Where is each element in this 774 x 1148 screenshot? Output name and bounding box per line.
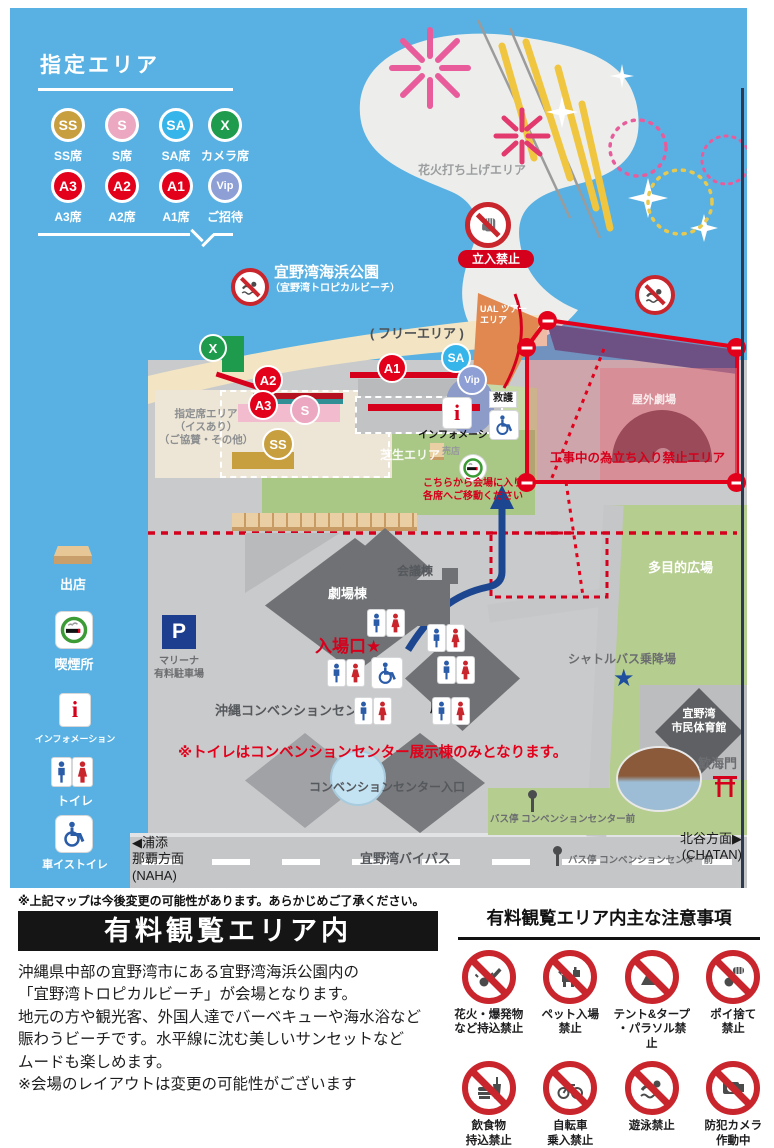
- toilet-icon: [428, 625, 464, 651]
- woman-icon: [387, 610, 404, 636]
- outdoor-theater-label: 屋外劇場: [632, 394, 676, 408]
- wheelchair-icon: [490, 411, 518, 439]
- legend-label: S席: [93, 147, 151, 164]
- man-icon: [355, 698, 372, 724]
- no-swimming-icon: [231, 268, 269, 306]
- rule-label: 防犯カメラ 作動中: [695, 1119, 773, 1148]
- rule-item: 防犯カメラ 作動中: [695, 1061, 773, 1148]
- free-area-label: ( フリーエリア ): [370, 326, 464, 342]
- rule-label: 自転車 乗入禁止: [532, 1119, 610, 1148]
- sidebar-label-smoking: 喫煙所: [45, 654, 103, 673]
- seat-marker-x: X: [199, 334, 227, 362]
- entrance-label: 入場口★: [315, 636, 381, 657]
- man-icon: [433, 698, 450, 724]
- man-icon: [438, 657, 455, 683]
- legend-badge-x: X: [208, 108, 242, 142]
- bus-stop-label: バス停 コンベンションセンター前: [490, 814, 635, 826]
- no-entry-label: 立入禁止: [458, 250, 534, 268]
- rule-item: 自転車 乗入禁止: [532, 1061, 610, 1148]
- boundary-marker-icon: [517, 338, 536, 357]
- legend-badge-a3: A3: [51, 169, 85, 203]
- legend-bottom-line: [213, 233, 233, 236]
- gym-label: 宜野湾 市民体育館: [658, 708, 740, 736]
- legend-label: A3席: [39, 208, 97, 225]
- legend-title: 指定エリア: [40, 53, 160, 79]
- rule-item: 遊泳禁止: [613, 1061, 691, 1148]
- wheelchair-icon: [56, 816, 92, 852]
- no-pets-icon: [543, 950, 597, 1004]
- no-littering-icon: [706, 950, 760, 1004]
- rules-grid: 花火・爆発物 など持込禁止 ペット入場 禁止 テント&タープ ・パラソル禁止 ポ…: [450, 950, 772, 1148]
- dotted-circle-decoration: [648, 170, 712, 234]
- enter-here-label: こちらから会場に入り 各席へご移動ください: [395, 478, 523, 503]
- rule-label: テント&タープ ・パラソル禁止: [613, 1008, 691, 1051]
- dotted-circle-decoration: [610, 120, 666, 176]
- woman-icon: [447, 625, 464, 651]
- bus-stop-icon: [531, 798, 534, 812]
- legend-badge-ss: SS: [51, 108, 85, 142]
- parking-label: マリーナ 有料駐車場: [149, 656, 209, 681]
- sidebar-label-wheelchair-toilet: 車イストイレ: [35, 856, 115, 872]
- legend-label: ご招待: [196, 208, 254, 225]
- woman-icon: [374, 698, 391, 724]
- venue-map: 指定席エリア （イスあり） （ご協賛・その他） 屋外劇場 工事中の為立ち入り禁止…: [10, 8, 747, 888]
- legend-bottom-line: [38, 233, 190, 236]
- rule-label: 飲食物 持込禁止: [450, 1119, 528, 1148]
- cc-entrance-label: コンベンションセンター入口: [297, 780, 477, 795]
- rule-label: ポイ捨て 禁止: [695, 1008, 773, 1037]
- rule-item: ポイ捨て 禁止: [695, 950, 773, 1051]
- theater-building-label: 劇場棟: [328, 586, 367, 602]
- no-food-drink-icon: [462, 1061, 516, 1115]
- construction-label: 工事中の為立ち入り禁止エリア: [550, 451, 747, 467]
- sidebar-label-shop: 出店: [44, 574, 102, 593]
- fireworks-area-label: 花火打ち上げエリア: [418, 163, 526, 178]
- shop-label: 売店: [442, 446, 460, 457]
- rule-item: 花火・爆発物 など持込禁止: [450, 950, 528, 1051]
- woman-icon: [452, 698, 469, 724]
- venue-description: 沖縄県中部の宜野湾市にある宜野湾海浜公園内の 「宜野湾トロピカルビーチ」が会場と…: [18, 962, 452, 1097]
- information-icon: i: [60, 694, 90, 726]
- legend-tail: [190, 229, 203, 242]
- legend-underline: [38, 88, 233, 91]
- no-bicycles-icon: [543, 1061, 597, 1115]
- legend-badge-s: S: [105, 108, 139, 142]
- firework-burst-icon: [392, 30, 468, 106]
- legend-badge-sa: SA: [159, 108, 193, 142]
- shop-icon: [54, 546, 92, 564]
- seat-marker-a3: A3: [248, 390, 278, 420]
- info-i-glyph: i: [72, 697, 78, 723]
- paid-area-banner: 有料観覧エリア内: [18, 911, 438, 951]
- toilet-icon: [438, 657, 474, 683]
- no-tents-icon: [625, 950, 679, 1004]
- kankaimon-label: 歓海門: [698, 756, 737, 772]
- gate-icon: [710, 772, 740, 800]
- no-swimming-icon: [625, 1061, 679, 1115]
- toilet-note: ※トイレはコンベンションセンター展示棟のみとなります。: [178, 744, 608, 762]
- legend-badge-a1: A1: [159, 169, 193, 203]
- toilet-icon: [328, 660, 364, 686]
- rule-label: 花火・爆発物 など持込禁止: [450, 1008, 528, 1037]
- info-i-glyph: i: [454, 400, 460, 426]
- toilet-icon: [52, 758, 92, 786]
- sparkle-icon: [546, 64, 718, 242]
- multipurpose-label: 多目的広場: [648, 560, 713, 576]
- rules-title: 有料観覧エリア内主な注意事項: [458, 908, 760, 940]
- man-icon: [428, 625, 445, 651]
- wheelchair-icon: [372, 658, 402, 688]
- conference-building-label: 会議棟: [397, 564, 433, 579]
- no-swimming-icon: [635, 275, 675, 315]
- woman-icon: [347, 660, 364, 686]
- rule-label: 遊泳禁止: [613, 1119, 691, 1133]
- rule-item: テント&タープ ・パラソル禁止: [613, 950, 691, 1051]
- seat-marker-vip: Vip: [457, 365, 487, 395]
- legend-badge-vip: Vip: [208, 169, 242, 203]
- park-subname: （宜野湾トロピカルビーチ）: [270, 283, 400, 296]
- man-icon: [368, 610, 385, 636]
- rule-item: ペット入場 禁止: [532, 950, 610, 1051]
- firework-burst-icon: [496, 110, 548, 162]
- legend-label: カメラ席: [196, 147, 254, 164]
- legend-badge-a2: A2: [105, 169, 139, 203]
- lawn-label: 芝生エリア: [380, 448, 440, 463]
- seat-marker-a1: A1: [377, 353, 407, 383]
- a1-stand-bar: [350, 372, 470, 378]
- shuttle-star-icon: ★: [613, 664, 635, 694]
- park-name: 宜野湾海浜公園: [274, 264, 379, 283]
- map-footnote: ※上記マップは今後変更の可能性があります。あらかじめご了承ください。: [18, 894, 538, 909]
- kankaimon-photo: [618, 748, 700, 810]
- no-fireworks-icon: [462, 950, 516, 1004]
- bypass-label: 宜野湾バイパス: [360, 851, 451, 867]
- tents-row: [232, 513, 417, 531]
- information-icon: i: [443, 398, 471, 428]
- toilet-icon: [433, 698, 469, 724]
- sidebar-label-info: インフォメーション: [31, 732, 119, 745]
- naha-direction-label: ◀浦添 那覇方面 (NAHA): [132, 835, 184, 884]
- rule-item: 飲食物 持込禁止: [450, 1061, 528, 1148]
- sidebar-label-toilet: トイレ: [46, 792, 104, 809]
- man-icon: [328, 660, 345, 686]
- woman-icon: [457, 657, 474, 683]
- smoking-icon: [56, 612, 92, 648]
- first-aid-label: 救護: [490, 392, 516, 407]
- security-camera-icon: [706, 1061, 760, 1115]
- rule-label: ペット入場 禁止: [532, 1008, 610, 1037]
- bus-stop-icon: [556, 854, 559, 866]
- conference-building: [442, 568, 458, 584]
- toilet-icon: [368, 610, 404, 636]
- man-icon: [52, 758, 71, 786]
- no-entry-icon: [465, 202, 511, 248]
- chatan-direction-label: 北谷方面▶ (CHATAN): [650, 831, 742, 864]
- tour-area-label: UAL ツアー エリア: [480, 304, 527, 327]
- seat-marker-ss: SS: [262, 428, 294, 460]
- toilet-icon: [355, 698, 391, 724]
- boundary-marker-icon: [538, 311, 557, 330]
- legend-label: SS席: [39, 147, 97, 164]
- legend-label: A2席: [93, 208, 151, 225]
- parking-icon: P: [162, 615, 196, 649]
- map-right-border: [741, 88, 744, 888]
- woman-icon: [73, 758, 92, 786]
- seat-marker-s: S: [290, 395, 320, 425]
